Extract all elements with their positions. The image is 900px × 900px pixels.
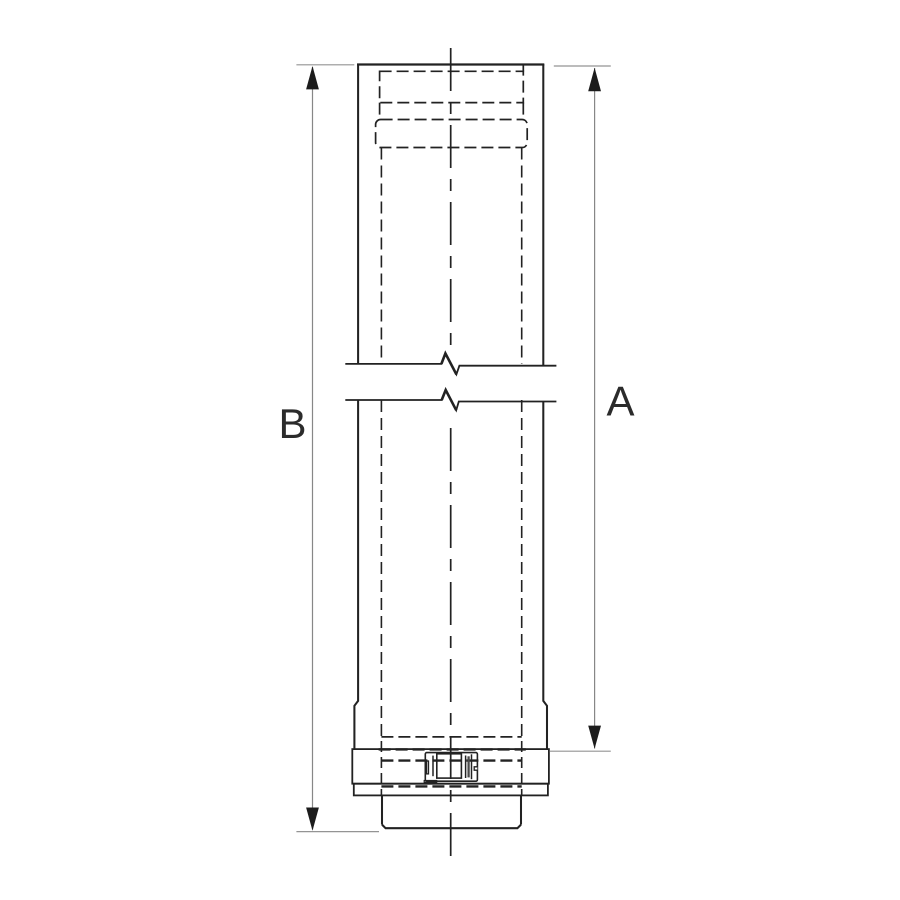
svg-text:B: B [279,400,307,447]
svg-text:A: A [607,378,635,425]
